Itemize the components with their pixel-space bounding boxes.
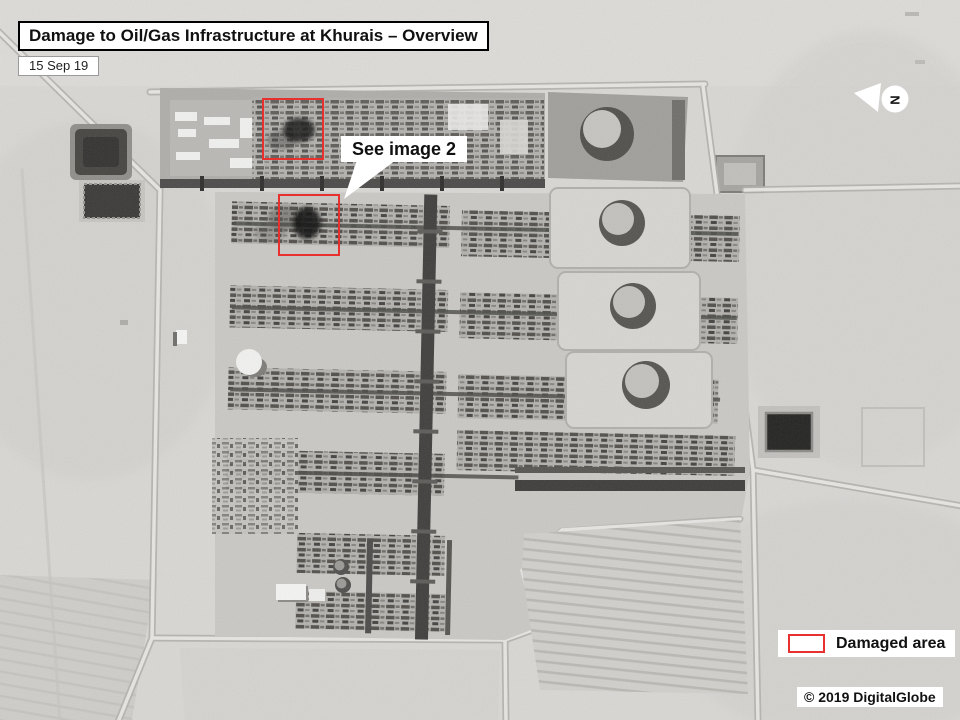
- see-image-callout: See image 2: [341, 136, 467, 162]
- image-date: 15 Sep 19: [18, 56, 99, 76]
- annotated-satellite-view: N Damage to Oil/Gas Infrastructure at Kh…: [0, 0, 960, 720]
- imagery-credit: © 2019 DigitalGlobe: [797, 687, 943, 707]
- legend: Damaged area: [778, 630, 955, 657]
- annotation-layer: Damage to Oil/Gas Infrastructure at Khur…: [0, 0, 960, 720]
- damaged-area-swatch-icon: [788, 634, 825, 653]
- legend-label: Damaged area: [836, 635, 945, 653]
- map-title: Damage to Oil/Gas Infrastructure at Khur…: [18, 21, 489, 51]
